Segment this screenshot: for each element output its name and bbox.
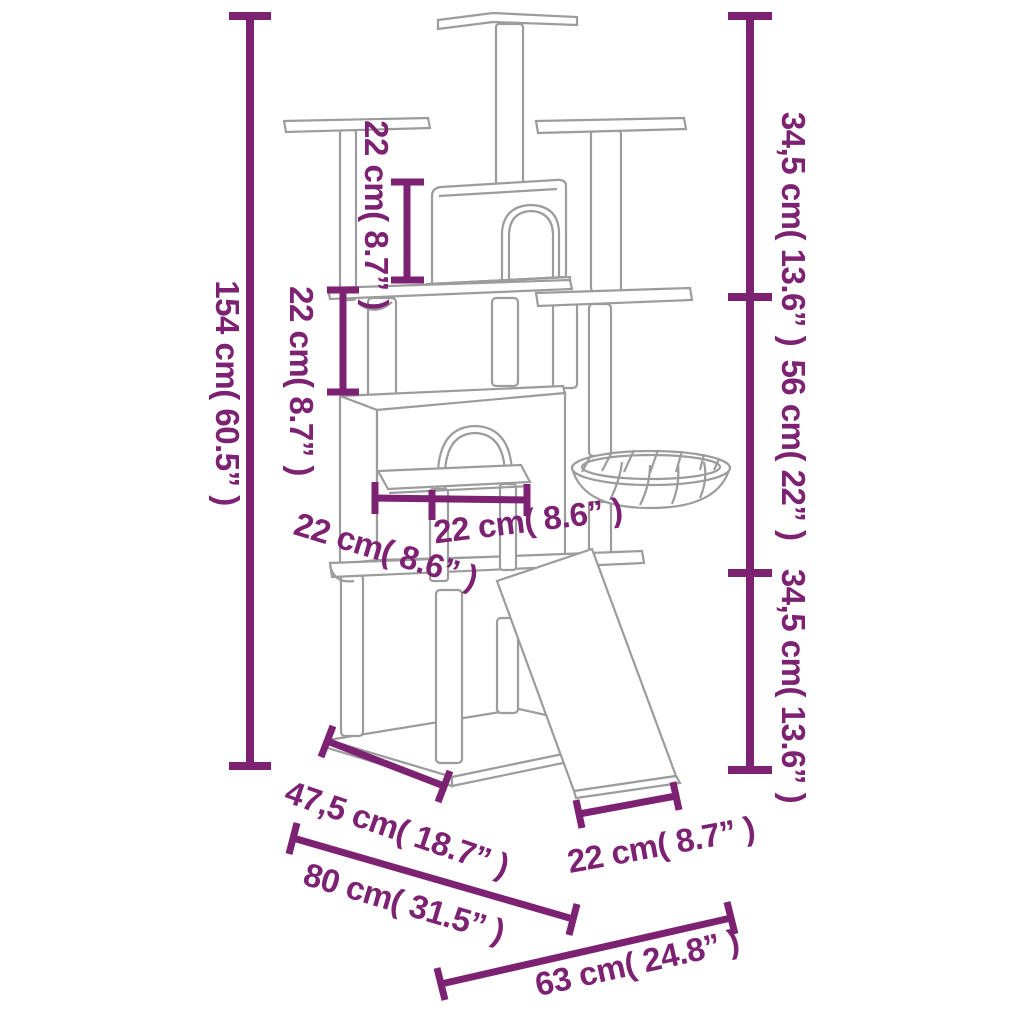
right-platform [536, 118, 686, 133]
label-upper-section: 34,5 cm( 13.6” ) [774, 112, 812, 346]
cat-house [427, 180, 570, 290]
label-shelf-gap-height: 22 cm( 8.7” ) [282, 286, 320, 476]
label-middle-section: 56 cm( 22” ) [774, 359, 812, 540]
label-top-house-height: 22 cm( 8.7” ) [357, 120, 395, 310]
label-total-height: 154 cm( 60.5” ) [208, 280, 246, 505]
dim-line-house-height [391, 182, 424, 280]
dim-line-right-sections [728, 16, 772, 770]
cat-tree [284, 13, 730, 798]
label-lower-section: 34,5 cm( 13.6” ) [774, 569, 812, 803]
right-mid-platform [536, 288, 692, 306]
dimension-diagram: 154 cm( 60.5” ) 22 cm( 8.7” ) 22 cm( 8.7… [0, 0, 1024, 1024]
dim-line-shelf-gap [327, 290, 359, 392]
